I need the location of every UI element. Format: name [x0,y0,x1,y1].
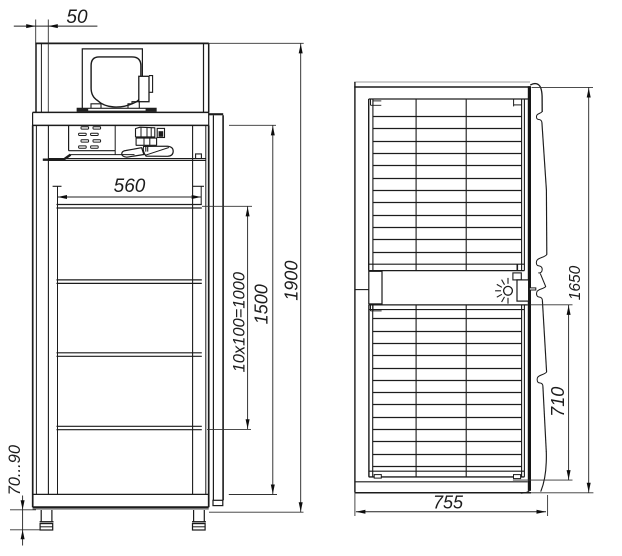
svg-text:50: 50 [66,7,88,28]
svg-text:1500: 1500 [252,284,272,324]
svg-text:755: 755 [433,493,464,513]
svg-text:1650: 1650 [567,265,584,300]
svg-text:70...90: 70...90 [6,444,24,495]
svg-text:560: 560 [114,176,146,197]
svg-text:10x100=1000: 10x100=1000 [231,271,249,372]
svg-text:710: 710 [548,387,568,417]
svg-text:1900: 1900 [281,261,301,301]
